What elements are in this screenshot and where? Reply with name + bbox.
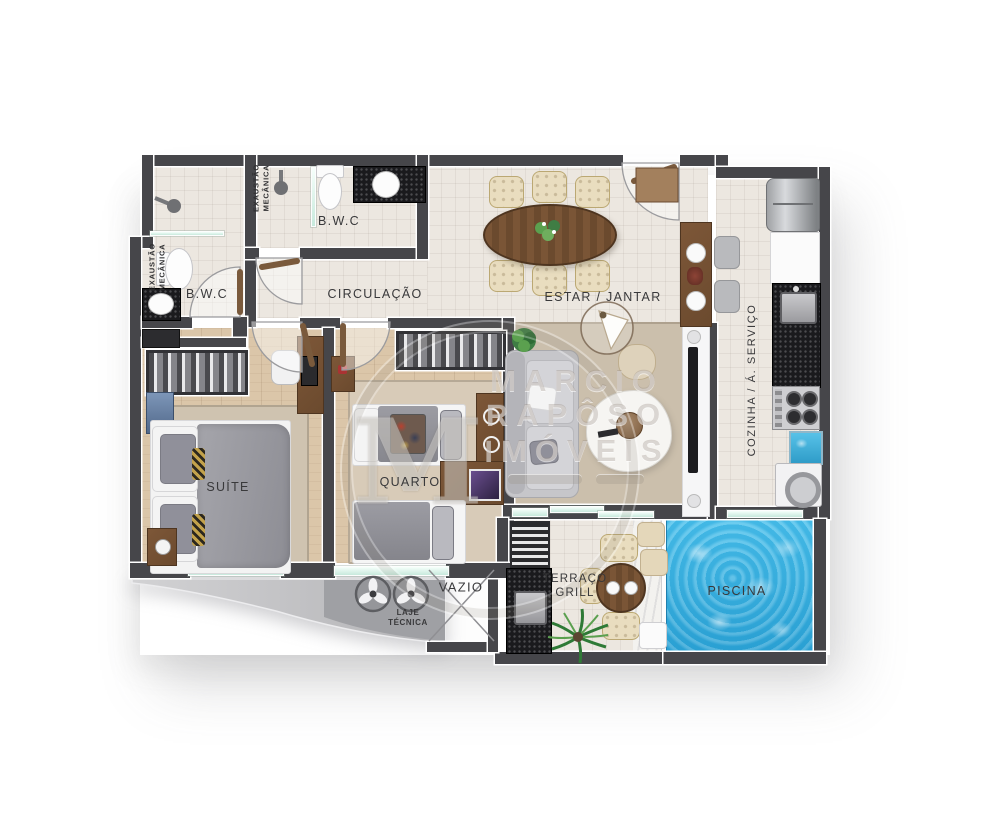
bar-stool-2 — [714, 280, 740, 313]
floor-plan-canvas: M MARCIO RAPÔSO IMÓVEIS EXAUSTÃO MECÂNIC… — [0, 0, 1000, 834]
label-exaustao-top-line2: MECÂNICA — [261, 165, 271, 212]
wall-bwc-top-bottom-b — [300, 248, 428, 259]
wall-hall-bottom-a — [300, 318, 340, 328]
kitchen-faucet — [793, 286, 799, 292]
kitchen-sink — [780, 292, 817, 324]
label-terraco-grill: TERRAÇO GRILL — [543, 572, 608, 600]
bar-plate-2 — [686, 291, 706, 311]
label-estar-jantar: ESTAR / JANTAR — [544, 290, 661, 304]
suite-dresser-dark — [142, 329, 180, 348]
washing-machine — [775, 463, 822, 507]
label-cozinha-servico: COZINHA / Á. SERVIÇO — [746, 304, 758, 457]
watermark-line-3: IMÓVEIS — [484, 433, 669, 469]
label-vazio: VAZIO — [439, 580, 484, 595]
vanity-sink-left — [148, 293, 174, 315]
bar-plate-1 — [686, 243, 706, 263]
tv-panel-decor-2 — [687, 494, 701, 508]
bar-stool-1 — [714, 236, 740, 269]
stove-burner-2 — [802, 391, 818, 407]
label-terraco-line2: GRILL — [555, 586, 594, 600]
wall-left-outer — [130, 237, 141, 578]
dining-chair-4 — [489, 260, 524, 292]
suite-accent-pillow-1 — [192, 448, 205, 480]
suite-lamp — [155, 539, 171, 555]
laundry-sink — [789, 431, 823, 465]
suite-pillow-gray-1 — [160, 434, 196, 484]
toilet-bowl-left — [165, 248, 193, 290]
wall-kitchen-top — [716, 167, 830, 178]
label-bwc-left: B.W.C — [186, 287, 228, 301]
dining-table — [483, 204, 617, 266]
label-exaustao-top: EXAUSTÃO MECÂNICA — [252, 164, 271, 212]
bar-decor — [687, 267, 703, 285]
toilet-bowl-top — [318, 173, 342, 210]
vanity-sink-top — [372, 171, 400, 198]
watermark-line-2: RAPÔSO — [486, 397, 668, 433]
suite-chair — [271, 350, 300, 385]
label-piscina: PISCINA — [707, 584, 766, 598]
deck-pouf-1 — [637, 522, 665, 547]
quarto-dresser-decor — [338, 365, 347, 374]
tv-panel-decor-1 — [687, 330, 701, 344]
label-exaustao-left-line2: MECÂNICA — [157, 244, 167, 291]
deck-pouf-2 — [640, 549, 668, 576]
label-bwc-top: B.W.C — [318, 214, 360, 228]
label-suite: SUÍTE — [206, 480, 249, 494]
bar-counter — [680, 222, 712, 327]
service-pool-window — [727, 510, 803, 518]
wall-pool-bottom — [660, 652, 826, 664]
stove — [772, 386, 820, 430]
dining-chair-3 — [575, 176, 610, 208]
watermark-contact-block-2 — [596, 474, 644, 484]
label-exaustao-top-line1: EXAUSTÃO — [252, 164, 262, 212]
dining-chair-6 — [575, 260, 610, 292]
suite-accent-pillow-2 — [192, 514, 205, 546]
label-laje-line2: TÉCNICA — [388, 618, 428, 628]
quarto-dresser — [331, 356, 355, 392]
kitchen-counter-granite — [772, 283, 821, 388]
wall-bwc-top-bottom-a — [245, 248, 259, 259]
stove-burner-1 — [786, 391, 802, 407]
fridge-door-line — [773, 203, 813, 205]
wall-void-bottom — [427, 642, 497, 652]
suite-wardrobe — [146, 350, 248, 395]
living-tv — [688, 347, 698, 473]
fridge — [766, 178, 820, 232]
label-circulacao: CIRCULAÇÃO — [328, 287, 423, 301]
label-exaustao-left-line1: EXAUSTÃO — [148, 243, 158, 291]
watermark-contact-block-1 — [508, 474, 582, 484]
stove-knobs — [775, 389, 782, 427]
watermark-line-1: MARCIO — [490, 363, 664, 399]
label-laje-tecnica: LAJE TÉCNICA — [388, 608, 428, 628]
suite-nightstand — [147, 528, 177, 566]
stove-burner-4 — [802, 409, 818, 425]
stove-burner-3 — [786, 409, 802, 425]
kitchen-counter-white — [770, 232, 820, 284]
wall-top-main — [143, 155, 623, 166]
dining-chair-2 — [532, 171, 567, 203]
dining-chair-1 — [489, 176, 524, 208]
label-quarto: QUARTO — [380, 475, 441, 489]
label-terraco-line1: TERRAÇO — [543, 572, 608, 586]
suite-tv — [301, 356, 318, 386]
watermark-monogram: M — [353, 393, 484, 532]
label-laje-line1: LAJE — [397, 608, 420, 618]
suite-duvet — [197, 424, 290, 568]
label-exaustao-left: EXAUSTÃO MECÂNICA — [148, 243, 167, 291]
terrace-plate-2 — [624, 581, 638, 595]
terrace-chair-2 — [602, 612, 640, 640]
wall-pool-right — [814, 519, 826, 664]
deck-towel — [639, 622, 667, 649]
washer-door — [785, 472, 821, 508]
bwc-left-shower-glass — [150, 231, 224, 236]
terrace-plate-1 — [606, 581, 620, 595]
